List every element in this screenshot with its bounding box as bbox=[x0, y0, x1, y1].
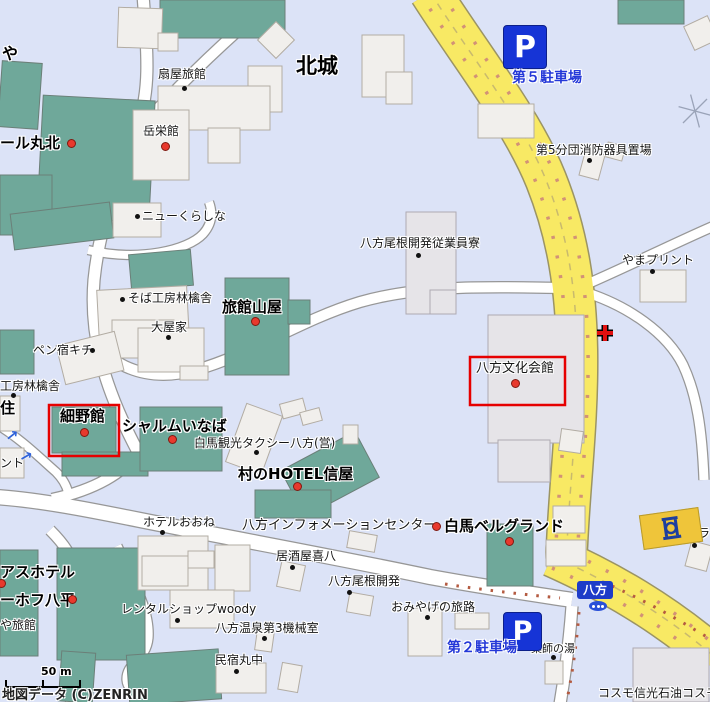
map-label: 八方尾根開発 bbox=[328, 575, 400, 587]
map-label: ニューくらしな bbox=[142, 210, 226, 222]
poi-dot-black bbox=[135, 214, 140, 219]
map-label: 細野館 bbox=[60, 409, 105, 424]
map-label: 第5分団消防器具置場 bbox=[536, 144, 652, 156]
road-name-sign: 八方 bbox=[577, 581, 613, 599]
map-label: や旅館 bbox=[0, 619, 36, 631]
poi-dot-black bbox=[175, 618, 180, 623]
parking-icon: P bbox=[503, 25, 547, 69]
poi-dot-black bbox=[692, 543, 697, 548]
map-label: ール丸北 bbox=[0, 136, 60, 151]
map-label: 住 bbox=[0, 401, 15, 416]
poi-dot-black bbox=[182, 86, 187, 91]
map-label: レンタルショップwoody bbox=[121, 603, 256, 615]
poi-dot-black bbox=[551, 655, 556, 660]
poi-dot-red bbox=[80, 428, 89, 437]
map-label: シャルムいなば bbox=[122, 419, 227, 434]
map-label: 工房林檎舎 bbox=[0, 380, 60, 392]
poi-dot-black bbox=[650, 269, 655, 274]
map-label: 岳栄館 bbox=[143, 125, 179, 137]
poi-dot-red bbox=[251, 317, 260, 326]
poi-dot-red bbox=[161, 142, 170, 151]
map-overlay: 50 m 地図データ (C)ZENRIN や北城扇屋旅館岳栄館ール丸北ニューくら… bbox=[0, 0, 710, 702]
poi-dot-black bbox=[290, 565, 295, 570]
poi-dot-black bbox=[90, 348, 95, 353]
map-label: おみやげの旅路 bbox=[391, 601, 475, 613]
map-label: コスモ信光石油コスモ八 bbox=[598, 687, 710, 699]
poi-dot-red bbox=[67, 139, 76, 148]
scale-text: 50 m bbox=[41, 665, 72, 678]
map-label: アスホテル bbox=[0, 565, 75, 580]
poi-dot-black bbox=[416, 253, 421, 258]
poi-dot-red bbox=[293, 482, 302, 491]
map-label: 八方尾根開発従業員寮 bbox=[360, 237, 480, 249]
traffic-signal-icon bbox=[589, 601, 607, 611]
map-label: や bbox=[2, 46, 18, 62]
map-canvas[interactable]: 50 m 地図データ (C)ZENRIN や北城扇屋旅館岳栄館ール丸北ニューくら… bbox=[0, 0, 710, 702]
poi-dot-black bbox=[234, 669, 239, 674]
poi-dot-red bbox=[432, 522, 441, 531]
map-label: 大屋家 bbox=[151, 321, 187, 333]
poi-dot-red bbox=[511, 379, 520, 388]
poi-dot-black bbox=[254, 450, 259, 455]
parking-label: 第２駐車場 bbox=[447, 641, 517, 655]
map-label: 村のHOTEL信屋 bbox=[238, 467, 353, 482]
map-label: 白馬観光タクシー八方(営) bbox=[194, 437, 335, 449]
poi-dot-black bbox=[347, 590, 352, 595]
poi-dot-black bbox=[120, 297, 125, 302]
poi-dot-black bbox=[160, 530, 165, 535]
poi-dot-black bbox=[587, 158, 592, 163]
poi-dot-black bbox=[11, 393, 16, 398]
parking-label: 第５駐車場 bbox=[512, 71, 582, 85]
map-label: やまプリント bbox=[622, 254, 694, 266]
poi-dot-red bbox=[505, 537, 514, 546]
map-label: 白馬ベルグランド bbox=[444, 519, 564, 534]
map-label: ーホフ八平 bbox=[0, 593, 75, 608]
poi-dot-red bbox=[68, 595, 77, 604]
map-label: 民宿丸中 bbox=[215, 654, 263, 666]
map-label: 旅館山屋 bbox=[222, 300, 282, 315]
one-way-arrow-icon: → bbox=[3, 426, 22, 446]
poi-dot-black bbox=[262, 636, 267, 641]
map-label: 八方温泉第3機械室 bbox=[215, 622, 319, 634]
map-label: 八方文化会館 bbox=[476, 362, 554, 375]
poi-dot-black bbox=[166, 335, 171, 340]
copyright-text: 地図データ (C)ZENRIN bbox=[2, 684, 148, 702]
map-label: 八方インフォメーションセンター bbox=[242, 519, 436, 532]
lantern-glyph bbox=[657, 514, 684, 543]
map-label: ペン宿キチ bbox=[33, 344, 93, 356]
poi-dot-black bbox=[425, 615, 430, 620]
map-label: そば工房林檎舎 bbox=[128, 292, 212, 304]
map-label: ホテルおおね bbox=[143, 516, 215, 528]
poi-dot-red bbox=[0, 579, 6, 588]
poi-dot-red bbox=[168, 435, 177, 444]
map-label: 居酒屋喜八 bbox=[276, 550, 336, 562]
map-label: 扇屋旅館 bbox=[158, 68, 206, 80]
map-label: 北城 bbox=[296, 56, 338, 77]
